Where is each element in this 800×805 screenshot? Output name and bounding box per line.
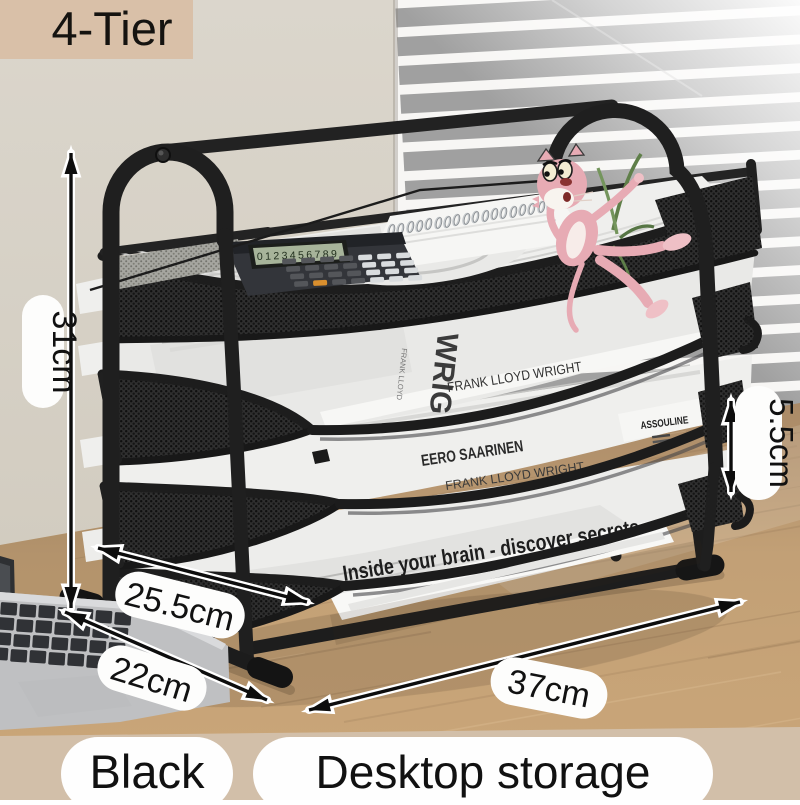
svg-text:31cm: 31cm [45, 310, 83, 393]
svg-text:Black: Black [90, 745, 205, 798]
svg-text:Desktop storage: Desktop storage [316, 746, 651, 798]
svg-text:5.5cm: 5.5cm [763, 398, 800, 488]
svg-text:4-Tier: 4-Tier [52, 2, 173, 55]
